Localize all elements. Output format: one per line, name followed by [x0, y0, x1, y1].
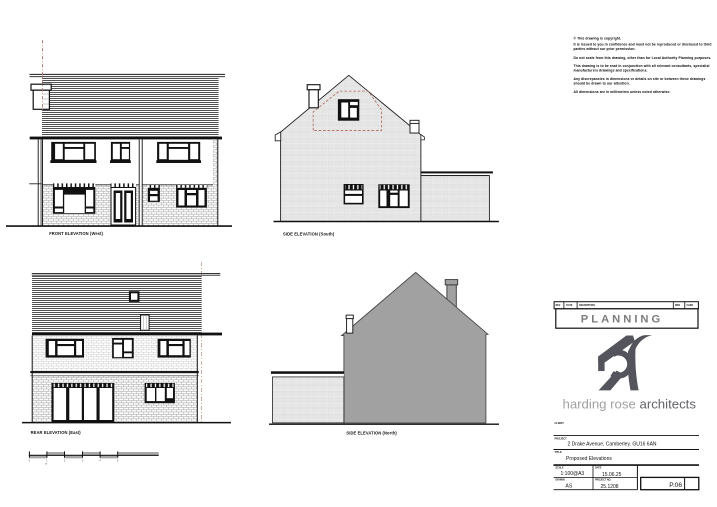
svg-text:1:100@A3: 1:100@A3: [561, 471, 585, 477]
svg-text:PLANNING: PLANNING: [581, 314, 663, 326]
svg-text:PROJECT: PROJECT: [555, 437, 568, 441]
svg-text:DRN: DRN: [675, 305, 680, 307]
svg-text:REAR ELEVATION (East): REAR ELEVATION (East): [31, 430, 82, 435]
svg-text:Any discrepancies in dimension: Any discrepancies in dimensions or detai…: [574, 77, 706, 81]
svg-text:Proposed Elevations: Proposed Elevations: [566, 456, 612, 462]
svg-text:REV: REV: [556, 305, 561, 307]
svg-text:DATE: DATE: [595, 466, 602, 469]
svg-text:Do not scale from this drawing: Do not scale from this drawing, other th…: [574, 56, 712, 60]
svg-text:SIDE ELEVATION (North): SIDE ELEVATION (North): [346, 431, 397, 436]
svg-text:This drawing is to be read in: This drawing is to be read in conjunctio…: [574, 64, 711, 68]
svg-text:parties without our prior perm: parties without our prior permission.: [574, 47, 636, 51]
svg-text:harding rose architects: harding rose architects: [563, 397, 697, 412]
svg-text:PROJECT NO.: PROJECT NO.: [595, 479, 612, 482]
svg-text:It is issued to you in confide: It is issued to you in confidence and mu…: [574, 43, 712, 47]
svg-text:DATE: DATE: [566, 304, 573, 307]
svg-text:m: m: [45, 463, 47, 466]
svg-text:TITLE: TITLE: [555, 450, 562, 454]
svg-text:manufacturers drawings and spe: manufacturers drawings and specification…: [574, 69, 648, 73]
svg-text:CLIENT: CLIENT: [555, 421, 565, 425]
svg-text:All dimensions are in millimet: All dimensions are in millimetres unless…: [574, 90, 671, 94]
svg-text:P.06: P.06: [669, 482, 682, 489]
svg-text:CHKD: CHKD: [687, 305, 694, 307]
svg-text:FRONT ELEVATION (West): FRONT ELEVATION (West): [49, 231, 103, 236]
svg-text:DESCRIPTION: DESCRIPTION: [579, 305, 595, 307]
svg-text:2 Drake Avenue, Camberley. GU1: 2 Drake Avenue, Camberley. GU16 6AN: [568, 441, 657, 447]
svg-text:AS: AS: [566, 483, 573, 489]
svg-text:should be drawn to our attenti: should be drawn to our attention.: [574, 81, 630, 85]
svg-text:25.1208: 25.1208: [601, 484, 619, 490]
svg-text:SCALE: SCALE: [556, 466, 565, 469]
svg-text:DRAWN: DRAWN: [556, 479, 565, 482]
svg-text:© This drawing is copyright.: © This drawing is copyright.: [574, 37, 622, 41]
svg-text:SIDE ELEVATION (South): SIDE ELEVATION (South): [283, 231, 335, 236]
svg-text:15.06.25: 15.06.25: [602, 472, 622, 478]
